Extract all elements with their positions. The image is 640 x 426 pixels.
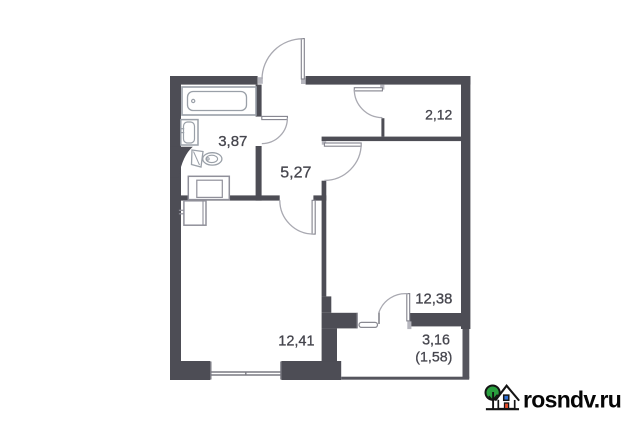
- svg-text:3,87: 3,87: [218, 133, 247, 150]
- svg-text:2,12: 2,12: [425, 107, 452, 123]
- svg-text:12,41: 12,41: [278, 334, 314, 350]
- svg-text:rosndv.ru: rosndv.ru: [523, 387, 621, 413]
- svg-text:3,16: 3,16: [422, 332, 450, 348]
- svg-text:12,38: 12,38: [415, 292, 452, 308]
- svg-text:5,27: 5,27: [280, 165, 311, 182]
- svg-text:(1,58): (1,58): [415, 349, 452, 365]
